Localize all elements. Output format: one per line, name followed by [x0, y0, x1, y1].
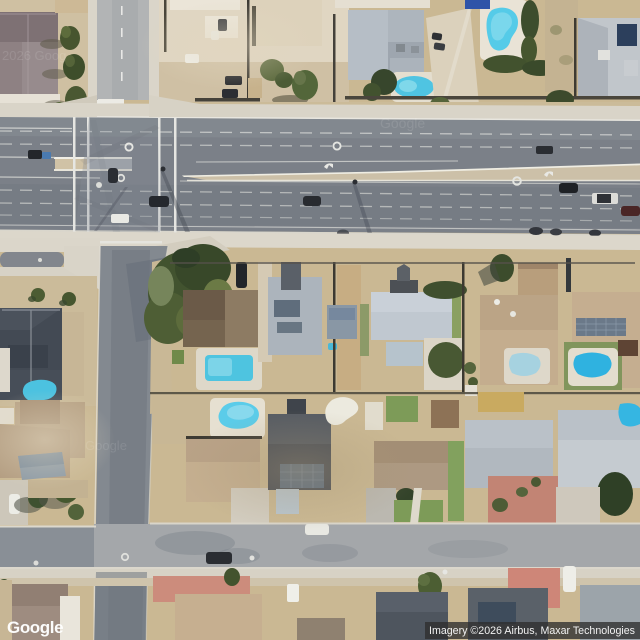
svg-text:Google: Google — [85, 438, 127, 453]
svg-text:Imagery ©2026 Airbus, Maxar Te: Imagery ©2026 Airbus, Maxar Technologies — [429, 625, 635, 637]
svg-text:Google: Google — [380, 115, 425, 131]
svg-text:2026 Goog: 2026 Goog — [2, 48, 66, 63]
svg-text:Google: Google — [7, 618, 63, 637]
